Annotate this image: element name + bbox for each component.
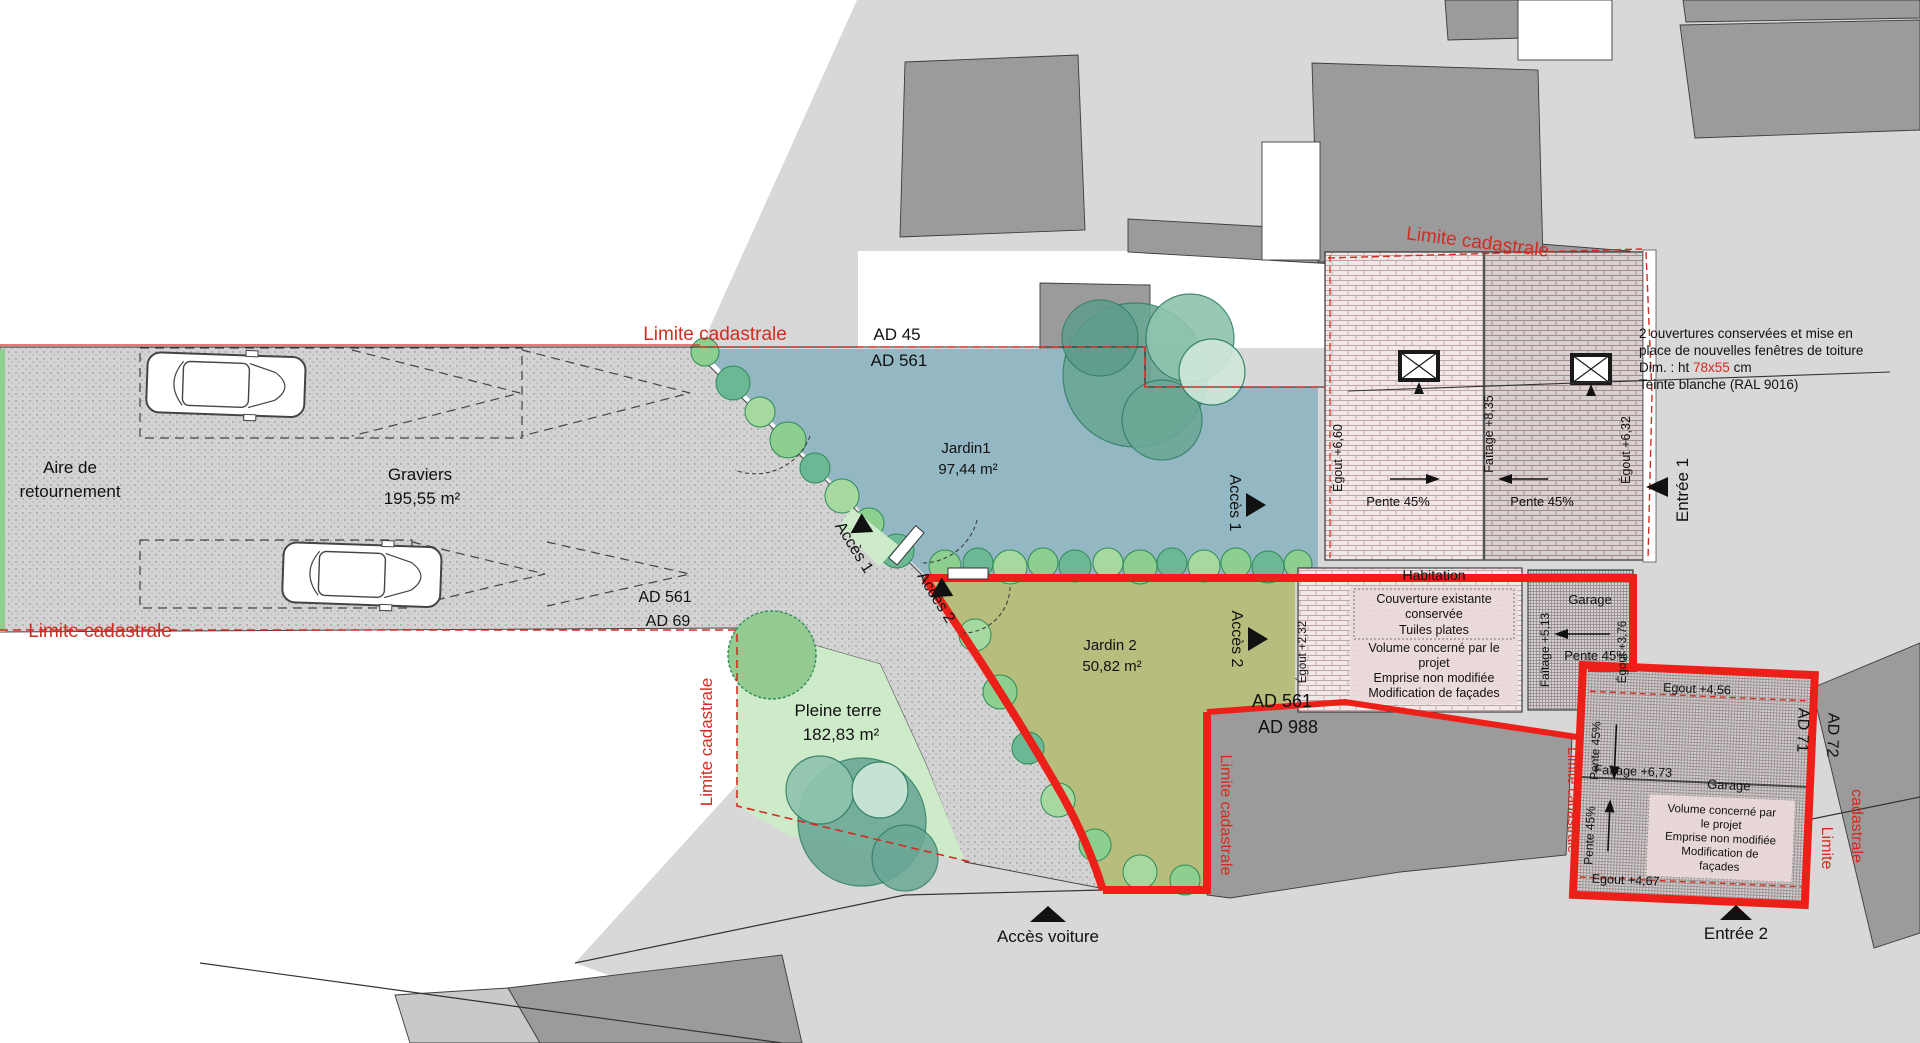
limite-label-top: Limite cadastrale — [643, 324, 787, 345]
building — [900, 55, 1085, 237]
egout-232-label: Égout +2,32 — [1296, 621, 1309, 683]
jardin1-label: Jardin1 — [941, 440, 990, 457]
garage2-block — [1573, 665, 1815, 905]
window-note-l1: 2 ouvertures conservées et mise en — [1639, 326, 1853, 341]
parcel-ad69: AD 69 — [646, 613, 691, 630]
jardin2-label: Jardin 2 — [1083, 637, 1136, 654]
graviers-label: Graviers — [388, 465, 452, 484]
bush — [728, 611, 816, 699]
pleine-terre-area-value: 182,83 m² — [803, 725, 880, 744]
limite-label-vert-left: Limite cadastrale — [697, 678, 716, 807]
limite-label-bottom-left: Limite cadastrale — [28, 621, 172, 642]
limite-label-vert-mid: Limite cadastrale — [1217, 755, 1234, 876]
garage2-title: Garage — [1707, 777, 1751, 794]
parcel-ad561-left: AD 561 — [638, 589, 691, 606]
limite-label-right-2: cadastrale — [1848, 789, 1865, 863]
garage2-egout-bas: Egout +4,67 — [1591, 872, 1659, 889]
aire-label2: retournement — [19, 482, 120, 501]
hab-note1-l2: conservée — [1405, 607, 1463, 621]
parcel-ad71: AD 71 — [1793, 708, 1812, 753]
garage1-title: Garage — [1568, 592, 1611, 607]
limite-label-vert-garage: Limite cadastrale — [1565, 747, 1581, 853]
acces1-right-label: Accès 1 — [1226, 475, 1243, 532]
car-2 — [282, 537, 442, 612]
gate-leaf — [948, 568, 988, 579]
aire-label: Aire de — [43, 458, 97, 477]
garage2-egout-haut: Egout +4,56 — [1663, 681, 1731, 698]
window-note-l2: place de nouvelles fenêtres de toiture — [1639, 343, 1863, 358]
hab-note2-l2: projet — [1418, 656, 1450, 670]
entree2-label: Entrée 2 — [1704, 924, 1768, 943]
faitage-513-label: Faîtage +5,13 — [1538, 612, 1552, 687]
jardin2-area-value: 50,82 m² — [1082, 658, 1141, 675]
entree1-label: Entrée 1 — [1673, 458, 1692, 522]
garage2-note-l2: le projet — [1700, 818, 1742, 832]
parcel-ad561-mid: AD 561 — [1252, 691, 1312, 711]
parcel-ad72: AD 72 — [1823, 713, 1842, 758]
hab-note2-l1: Volume concerné par le — [1368, 641, 1499, 655]
car-1 — [146, 347, 306, 422]
building — [1445, 0, 1525, 40]
parcel-ad561-top: AD 561 — [871, 351, 928, 370]
courtyard-white — [1262, 142, 1320, 260]
green-edge-strip — [0, 349, 5, 632]
parcel-ad45: AD 45 — [873, 325, 920, 344]
graviers-area-value: 195,55 m² — [384, 489, 461, 508]
pente-right-label: Pente 45% — [1510, 494, 1574, 509]
limite-label-right-1: Limite — [1818, 827, 1835, 870]
parcel-ad988: AD 988 — [1258, 717, 1318, 737]
jardin1-area-value: 97,44 m² — [938, 461, 997, 478]
wall-strip — [1643, 250, 1656, 562]
egout-660-label: Égout +6,60 — [1330, 424, 1345, 492]
hab-note2-l3: Emprise non modifiée — [1374, 671, 1495, 685]
acces-voiture-label: Accès voiture — [997, 927, 1099, 946]
garage2-pente-bas: Pente 45% — [1581, 805, 1598, 865]
acces2-right-label: Accès 2 — [1228, 611, 1245, 668]
egout-632-label: Égout +6,32 — [1618, 416, 1633, 484]
hab-note2-l4: Modification de façades — [1368, 686, 1499, 700]
garage2-note-l5: façades — [1699, 860, 1740, 874]
building — [1680, 20, 1920, 138]
building — [1683, 0, 1920, 22]
hab-note1-l1: Couverture existante — [1376, 592, 1491, 606]
hab-note1-l3: Tuiles plates — [1399, 623, 1469, 637]
pleine-terre-label: Pleine terre — [795, 701, 882, 720]
site-plan: Aire de retournement Graviers 195,55 m² … — [0, 0, 1920, 1043]
white-square — [1518, 0, 1612, 60]
egout-376-label: Égout +3,76 — [1616, 621, 1629, 683]
faitage-835-label: Faîtage +8,35 — [1482, 395, 1496, 473]
habitation-title: Habitation — [1402, 567, 1465, 583]
window-note-l4: Teinte blanche (RAL 9016) — [1639, 377, 1798, 392]
window-note-l3: Dim. : ht 78x55 cm — [1639, 360, 1752, 375]
pente-left-label: Pente 45% — [1366, 494, 1430, 509]
